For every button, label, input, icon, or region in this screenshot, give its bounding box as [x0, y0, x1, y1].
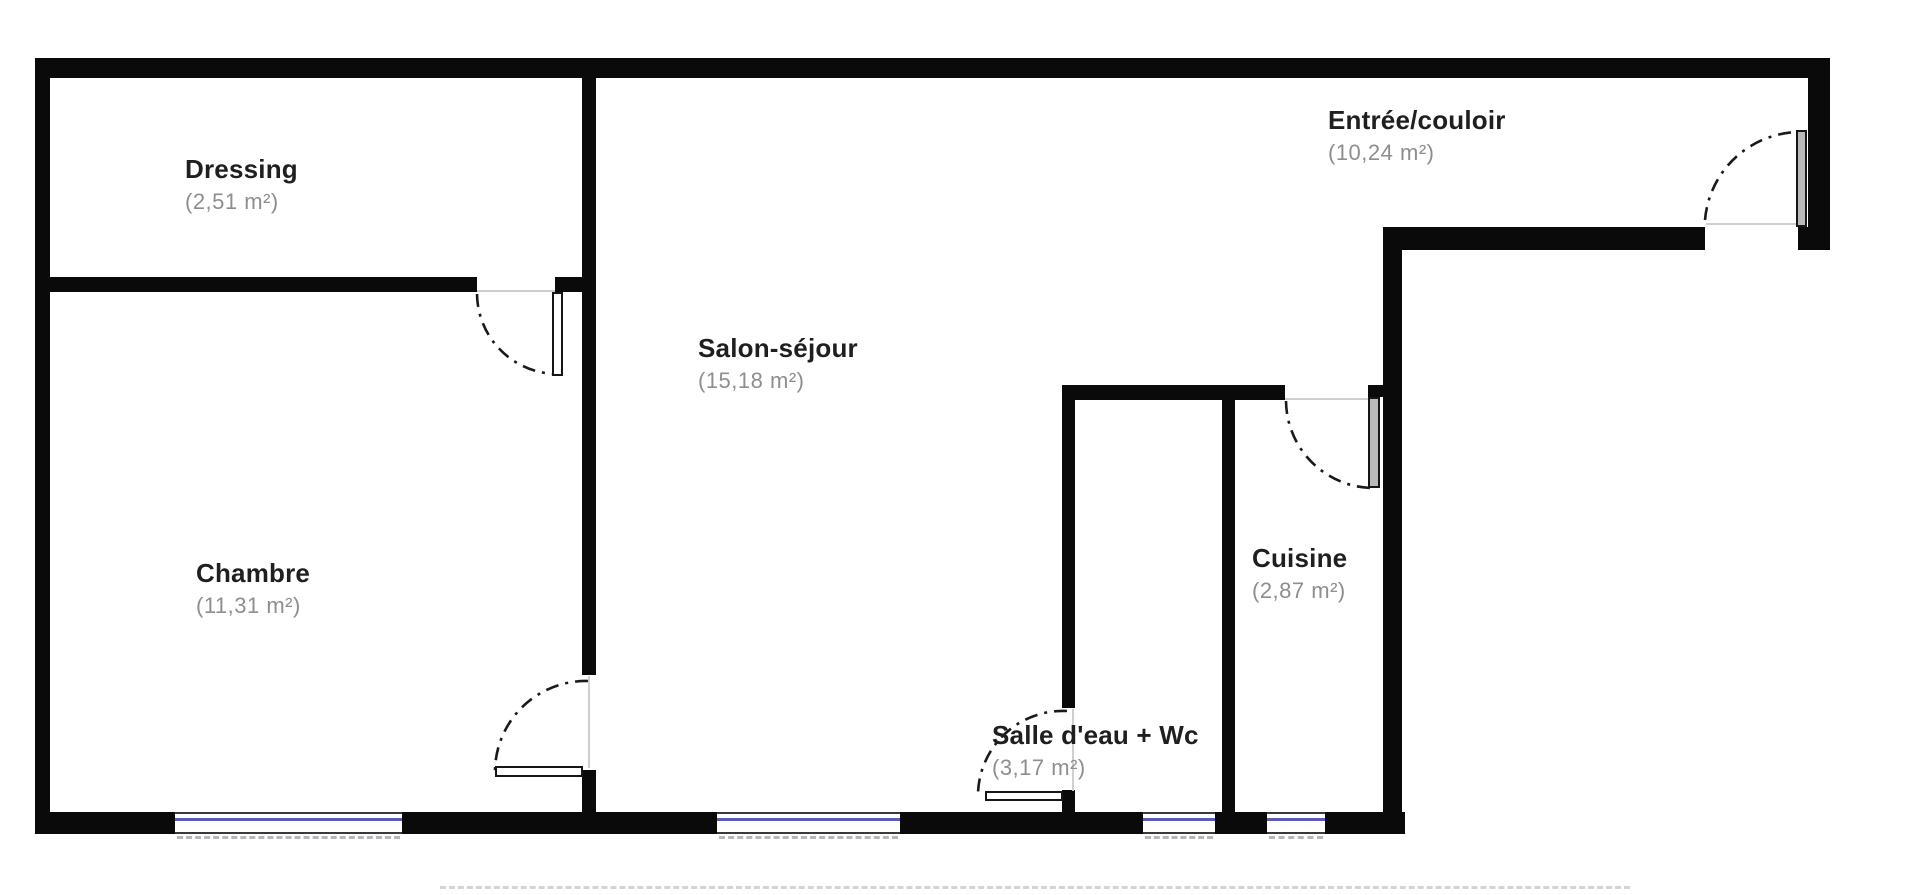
wall-salon-divider [582, 58, 596, 675]
wall-entry-bottom [1383, 227, 1705, 250]
door-arc-entry [1705, 132, 1799, 220]
window-glass-line [1143, 818, 1215, 821]
window-sill-dashes [1269, 836, 1323, 839]
room-area: (15,18 m²) [698, 370, 858, 392]
door-leaf-chambre [495, 766, 583, 777]
door-leaf-entry [1796, 130, 1807, 227]
floor-plan: Dressing (2,51 m²) Chambre (11,31 m²) Sa… [0, 0, 1920, 895]
room-area: (10,24 m²) [1328, 142, 1506, 164]
wall-kitchen-door-jamb [1368, 385, 1383, 397]
wall-outer-top [35, 58, 1830, 78]
threshold-cuisine-door [1285, 398, 1369, 400]
room-area: (2,87 m²) [1252, 580, 1347, 602]
wall-entry-vertical [1383, 227, 1402, 834]
window-glass-line [175, 818, 402, 821]
threshold-dressing-door [477, 290, 555, 292]
room-name: Salon-séjour [698, 335, 858, 361]
door-leaf-cuisine [1368, 397, 1380, 488]
room-name: Dressing [185, 156, 298, 182]
wall-dressing-divider-stub [555, 277, 582, 292]
room-name: Entrée/couloir [1328, 107, 1506, 133]
room-label-chambre: Chambre (11,31 m²) [196, 560, 310, 617]
window-sill-dashes [1145, 836, 1213, 839]
wall-bathroom-top [1062, 385, 1285, 400]
window-sill-dashes [719, 836, 898, 839]
room-name: Cuisine [1252, 545, 1347, 571]
room-label-entree: Entrée/couloir (10,24 m²) [1328, 107, 1506, 164]
wall-bathroom-left [1062, 400, 1075, 708]
room-label-dressing: Dressing (2,51 m²) [185, 156, 298, 213]
window-sill-dashes [177, 836, 400, 839]
door-leaf-salle-eau [985, 791, 1063, 801]
ground-dashed-line [440, 886, 1630, 889]
wall-bathroom-kitchen-divider [1222, 400, 1235, 812]
wall-dressing-divider [50, 277, 477, 292]
room-area: (11,31 m²) [196, 595, 310, 617]
wall-outer-right-entry [1808, 58, 1830, 250]
window-glass-line [1267, 818, 1325, 821]
room-area: (2,51 m²) [185, 191, 298, 213]
wall-bathroom-left-stub [1062, 790, 1075, 814]
room-label-salle-eau: Salle d'eau + Wc (3,17 m²) [992, 722, 1199, 779]
door-arc-dressing [477, 294, 556, 374]
window-cuisine [1267, 812, 1325, 834]
window-chambre [175, 812, 402, 834]
wall-salon-divider-stub [582, 770, 596, 814]
threshold-entry-door [1706, 223, 1798, 225]
door-arc-chambre [495, 681, 588, 771]
window-glass-line [717, 818, 900, 821]
door-arcs-layer [0, 0, 1920, 895]
wall-outer-left [35, 58, 50, 834]
threshold-chambre-door [588, 676, 590, 768]
room-area: (3,17 m²) [992, 757, 1199, 779]
wall-entry-bottom-corner [1798, 227, 1830, 250]
door-leaf-dressing [552, 292, 563, 376]
window-salon [717, 812, 900, 834]
room-name: Chambre [196, 560, 310, 586]
room-name: Salle d'eau + Wc [992, 722, 1199, 748]
room-label-cuisine: Cuisine (2,87 m²) [1252, 545, 1347, 602]
window-salle-eau [1143, 812, 1215, 834]
door-arc-cuisine [1286, 401, 1373, 488]
room-label-salon: Salon-séjour (15,18 m²) [698, 335, 858, 392]
